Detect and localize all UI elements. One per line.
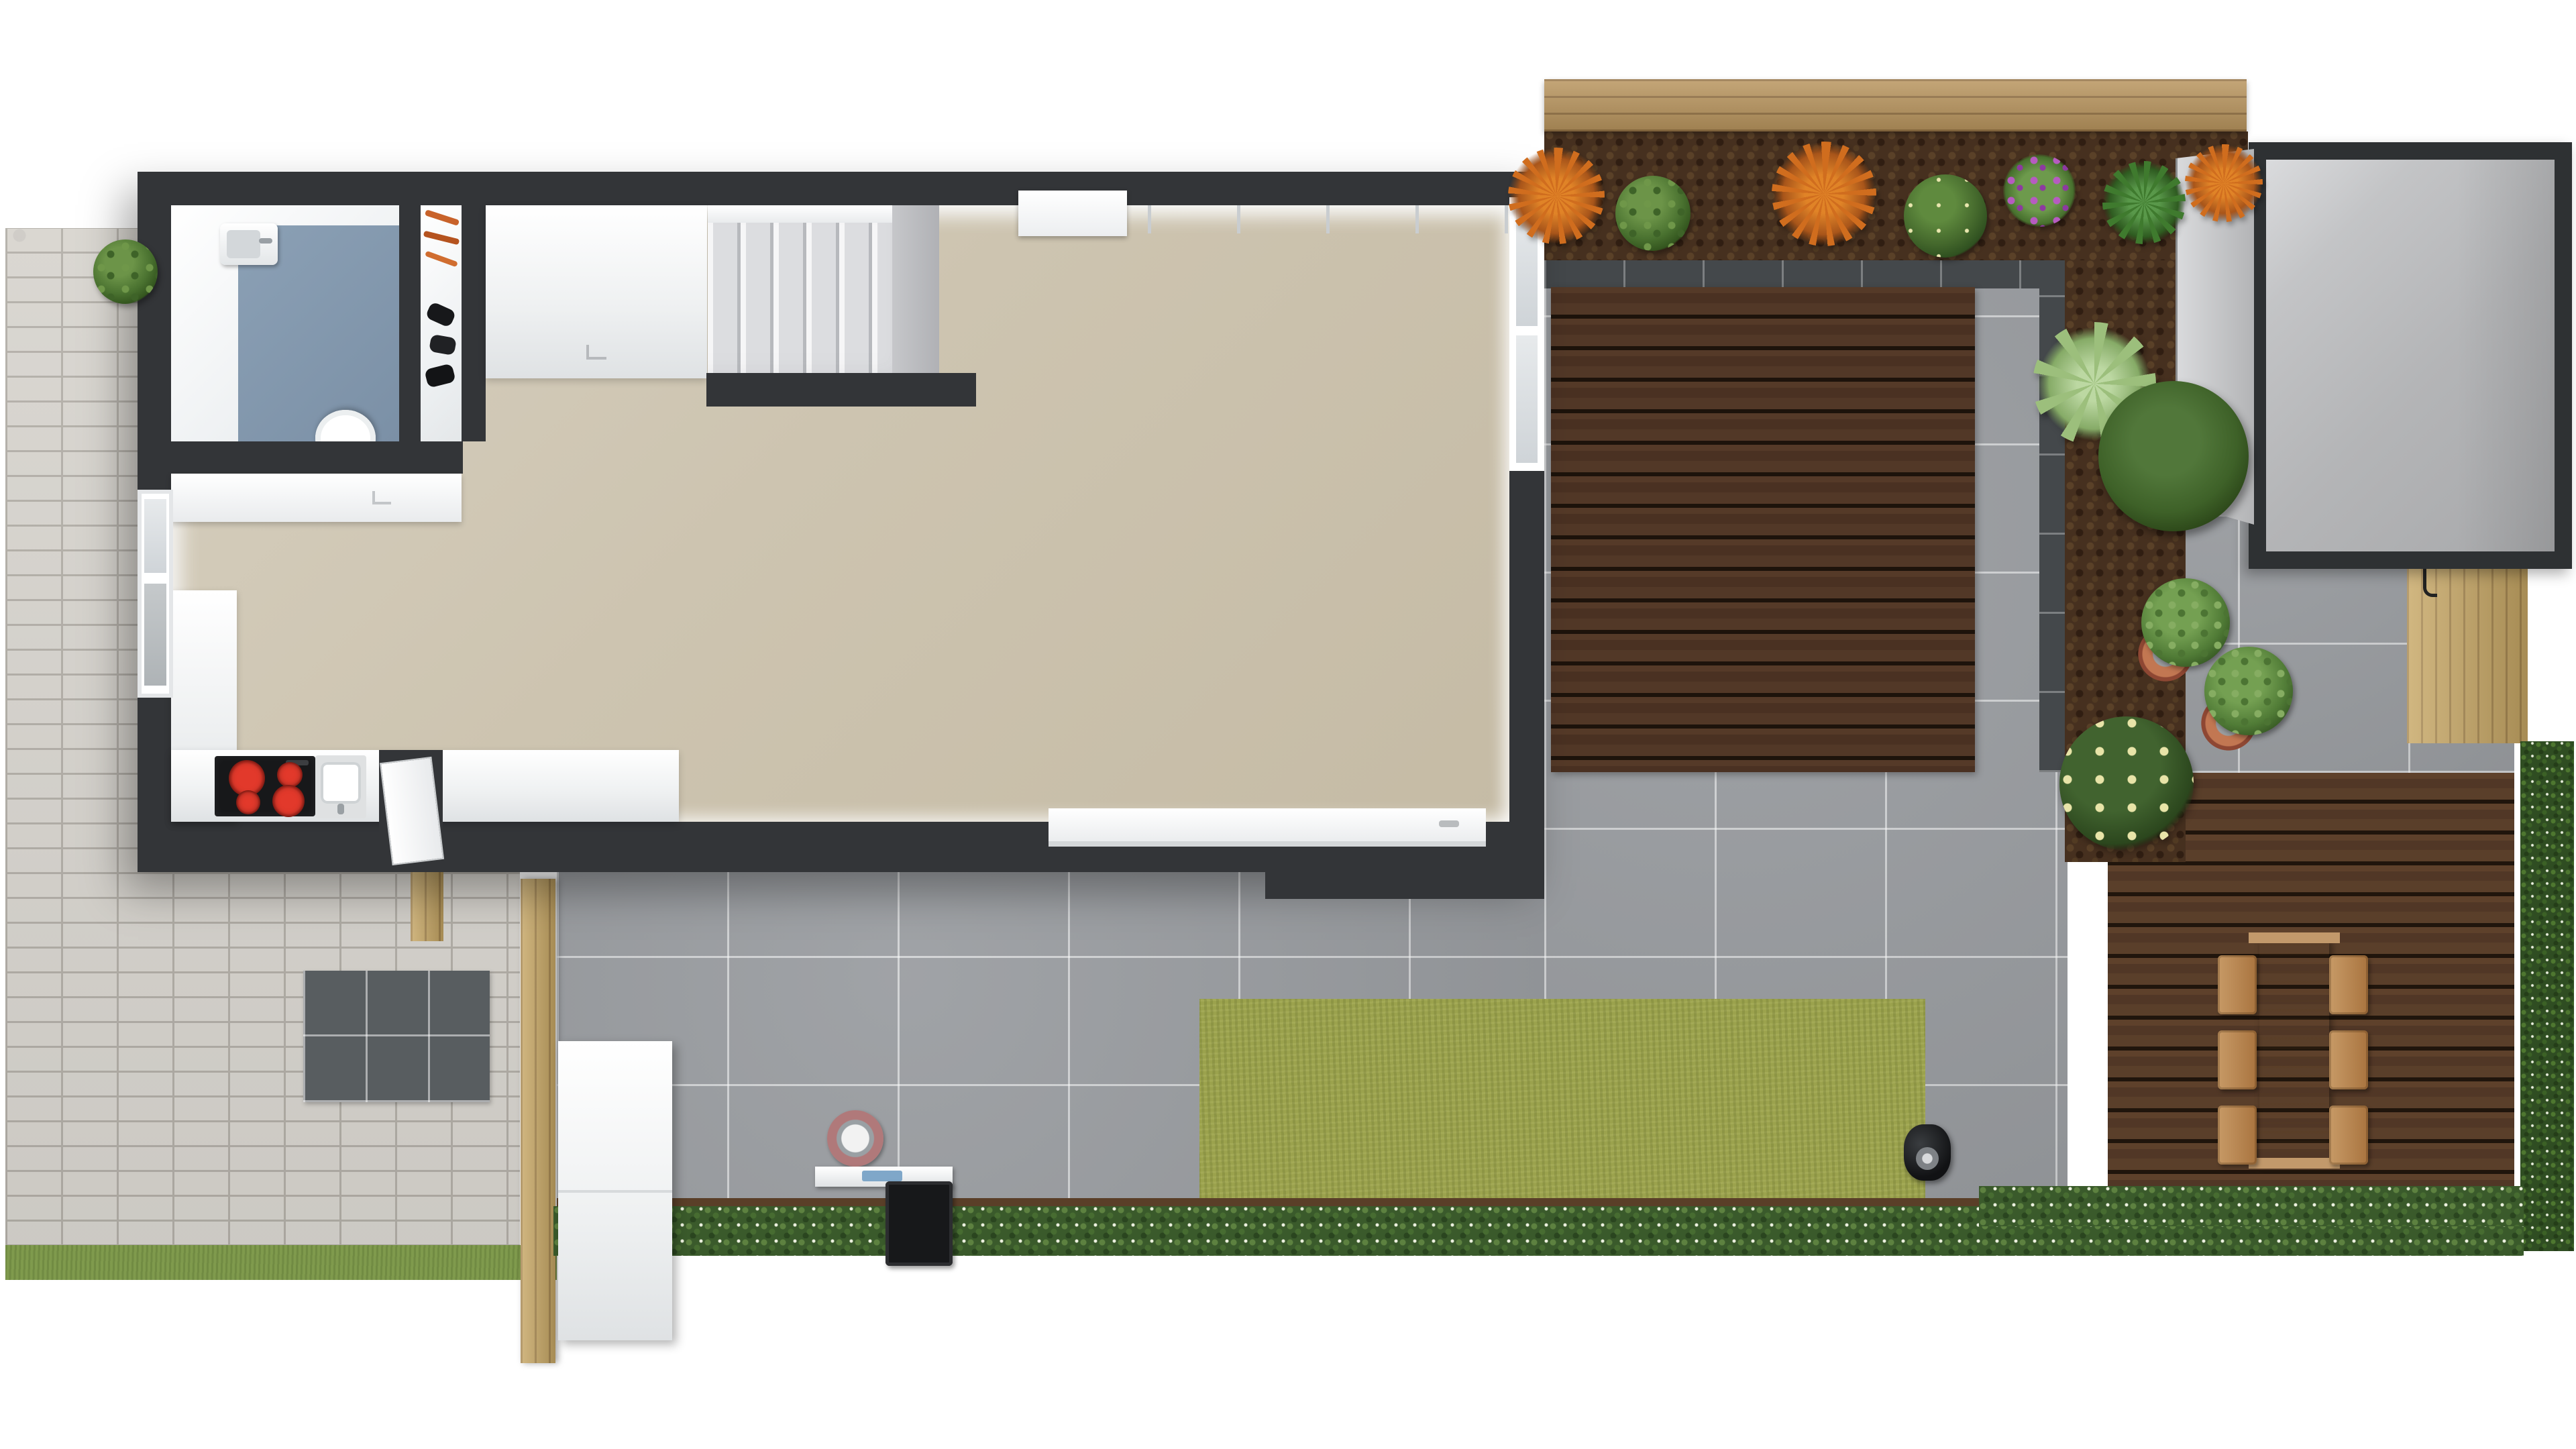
back-door-leaf bbox=[380, 757, 444, 865]
coat-rod-orange-2 bbox=[423, 231, 460, 246]
side-gate-small bbox=[411, 872, 443, 941]
bathroom-sink bbox=[220, 223, 278, 265]
kitchen-upper-cabinet-band bbox=[171, 474, 462, 522]
bathroom bbox=[171, 205, 399, 441]
front-door-pane bbox=[144, 584, 166, 686]
sink-faucet-icon bbox=[259, 238, 272, 244]
bathroom-bottom-wall bbox=[138, 441, 463, 474]
coat-rod-orange-3 bbox=[425, 251, 458, 268]
gate-hinge-top bbox=[2423, 567, 2437, 597]
flower-bed-right bbox=[2065, 260, 2186, 862]
sliding-door-handle-icon bbox=[1439, 820, 1459, 827]
front-door-transom-glass bbox=[144, 499, 166, 573]
garden-shed bbox=[2249, 142, 2572, 569]
kitchen-sink-unit bbox=[315, 755, 366, 818]
fence-top bbox=[1544, 79, 2247, 131]
cabinet-door-line bbox=[558, 1190, 672, 1193]
flower-bed-top bbox=[1544, 131, 2248, 260]
dining-bench-bottom bbox=[2249, 1158, 2340, 1169]
outdoor-storage-cabinet bbox=[558, 1041, 672, 1340]
planter-curb-vertical bbox=[2039, 288, 2068, 772]
kitchen-back-doorway bbox=[379, 750, 443, 872]
dining-bench-top bbox=[2249, 932, 2340, 943]
staircase bbox=[708, 205, 939, 373]
stove-burner-4 bbox=[272, 785, 305, 817]
dining-table bbox=[2259, 938, 2329, 1162]
driveway-tile-pad bbox=[303, 971, 490, 1102]
coat-hook-dark-1 bbox=[425, 301, 456, 328]
shed-interior bbox=[2266, 160, 2555, 551]
closet-right-wall bbox=[462, 205, 486, 441]
hedge-right bbox=[2520, 741, 2574, 1251]
mower-wheel bbox=[1916, 1147, 1939, 1170]
robot-mower bbox=[1904, 1124, 1951, 1181]
sink-basin bbox=[227, 230, 260, 258]
cooktop bbox=[215, 756, 315, 816]
bathroom-closet-divider-wall bbox=[399, 205, 421, 441]
kitchen-faucet-icon bbox=[337, 804, 344, 814]
groundcover-strip-right bbox=[1979, 1186, 2524, 1226]
cabinet-handle-icon bbox=[372, 491, 391, 504]
coat-hook-dark-2 bbox=[429, 334, 457, 356]
bbq-station bbox=[815, 1110, 969, 1271]
sliding-door-sill bbox=[1049, 808, 1486, 847]
coat-closet bbox=[421, 205, 462, 441]
right-wall-window bbox=[1509, 197, 1544, 471]
coat-hook-dark-3 bbox=[424, 363, 456, 388]
cupboard-handle-icon bbox=[586, 345, 606, 360]
bbq-table-items bbox=[862, 1171, 902, 1181]
bbq-pan bbox=[827, 1110, 883, 1167]
living-window-box-top bbox=[1018, 191, 1127, 236]
grass-strip-left bbox=[5, 1245, 557, 1280]
fence-driveway bbox=[521, 879, 555, 1363]
stove-burner-2 bbox=[277, 762, 303, 788]
kitchen-sink-basin bbox=[321, 762, 361, 804]
wall-under-stairs bbox=[706, 373, 976, 407]
bbq-grill-box bbox=[885, 1181, 953, 1266]
floor-plan-scene bbox=[0, 0, 2576, 1449]
front-door bbox=[138, 490, 173, 698]
coat-rod-orange-1 bbox=[425, 209, 460, 226]
shed-door-open bbox=[2176, 149, 2254, 525]
right-window-glass bbox=[1516, 204, 1538, 326]
stair-landing bbox=[892, 205, 939, 373]
shed-inner-wall-shadow bbox=[2457, 160, 2555, 551]
stove-burner-3 bbox=[236, 790, 260, 814]
right-window-glass-2 bbox=[1516, 335, 1538, 463]
lawn bbox=[1199, 999, 1925, 1216]
deck-top bbox=[1551, 287, 1975, 772]
house-wall-step bbox=[1265, 871, 1544, 899]
hall-cupboard bbox=[486, 205, 707, 378]
